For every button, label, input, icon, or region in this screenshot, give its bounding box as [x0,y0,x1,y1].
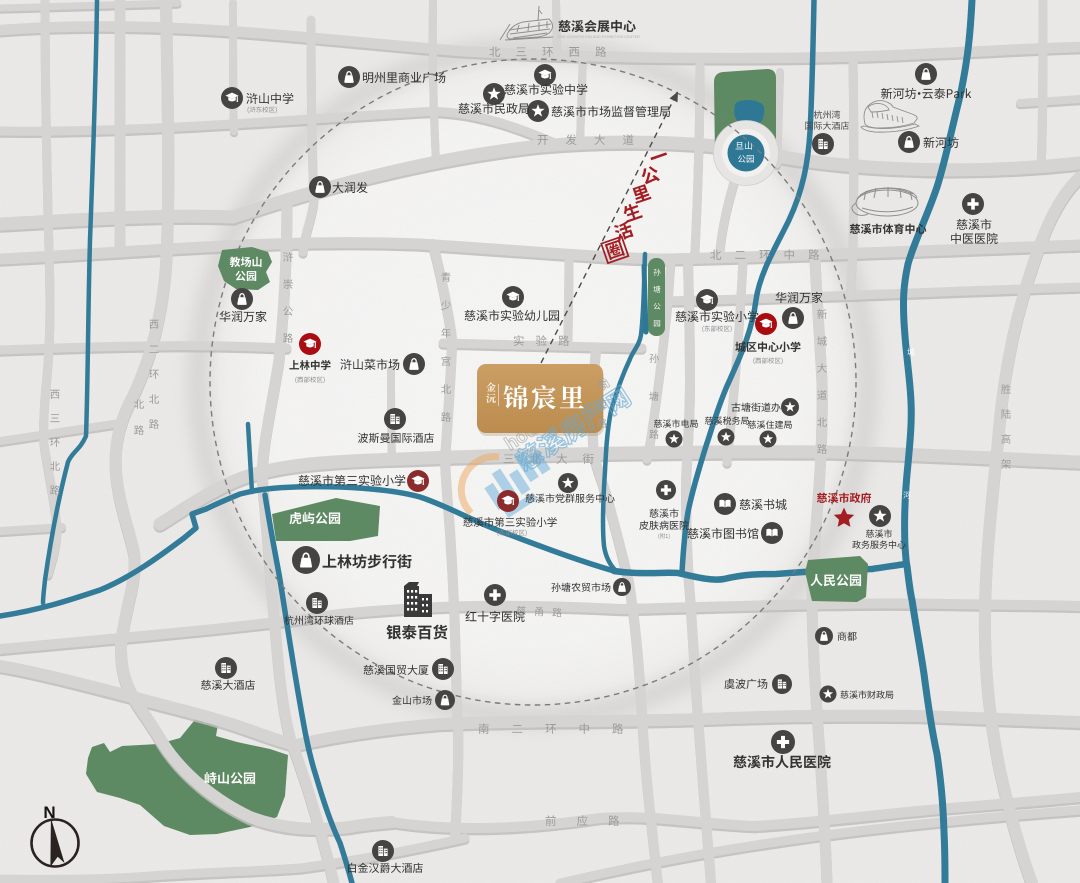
svg-text:CIXI CONVENTION AND EXHIBITION: CIXI CONVENTION AND EXHIBITION CENTER [558,35,640,39]
svg-text:N: N [43,803,55,822]
